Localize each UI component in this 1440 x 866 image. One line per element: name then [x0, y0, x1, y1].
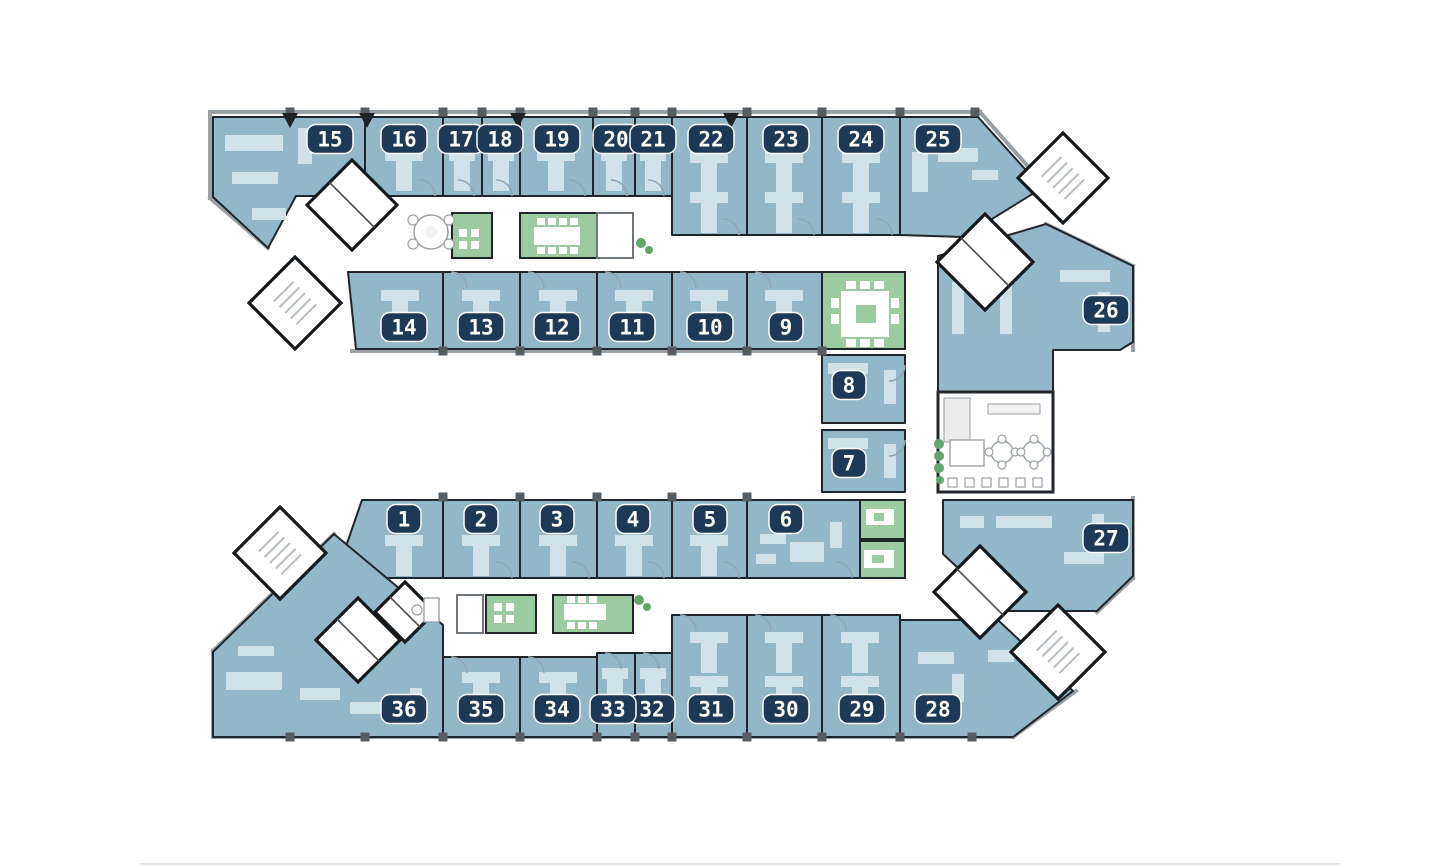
desk: [701, 163, 717, 193]
chair: [998, 461, 1006, 469]
furniture: [830, 522, 842, 548]
room-badge-23[interactable]: 23: [763, 125, 809, 154]
meeting-table: [891, 298, 899, 308]
furniture: [238, 646, 274, 656]
room-badge-15[interactable]: 15: [307, 125, 353, 154]
desk: [853, 203, 869, 233]
meeting-table: [459, 241, 467, 249]
mullion: [668, 347, 677, 356]
chair: [982, 478, 991, 487]
furniture: [252, 208, 286, 220]
desk: [690, 632, 728, 643]
plant-icon: [934, 439, 944, 449]
mullion: [516, 493, 525, 502]
room-number-label: 22: [698, 128, 723, 152]
chair: [998, 435, 1006, 443]
room-number-label: 12: [544, 316, 569, 340]
room-number-label: 36: [391, 698, 416, 722]
room-badge-19[interactable]: 19: [534, 125, 580, 154]
meeting-table: [860, 339, 870, 347]
meeting-table: [506, 603, 514, 611]
mullion: [971, 108, 980, 117]
meeting-table: [548, 247, 556, 254]
furniture: [226, 672, 282, 690]
room-number-label: 29: [849, 698, 874, 722]
meeting-table: [589, 622, 597, 629]
furniture: [960, 516, 984, 528]
floor-plan-stage: 1234567891011121314151617181920212223242…: [0, 0, 1440, 866]
mullion: [516, 347, 525, 356]
table-center: [425, 226, 437, 238]
room-number-label: 2: [475, 508, 488, 532]
mullion: [286, 733, 295, 742]
chair: [948, 478, 957, 487]
desk: [841, 676, 879, 687]
floor-plan: 1234567891011121314151617181920212223242…: [0, 0, 1440, 866]
desk: [765, 290, 803, 301]
room-badge-6[interactable]: 6: [769, 505, 803, 534]
room-number-label: 23: [773, 128, 798, 152]
mullion: [743, 347, 752, 356]
service-room: [457, 595, 483, 633]
mullion: [968, 733, 977, 742]
room-badge-27[interactable]: 27: [1083, 524, 1129, 553]
mullion: [743, 493, 752, 502]
room-badge-10[interactable]: 10: [687, 313, 733, 342]
service-room: [597, 213, 633, 258]
mullion: [743, 733, 752, 742]
chair: [1043, 448, 1051, 456]
mullion: [668, 493, 677, 502]
room-number-label: 16: [391, 128, 416, 152]
meeting-table: [874, 513, 884, 521]
meeting-table: [459, 229, 467, 237]
mullion: [668, 108, 677, 117]
meeting-table: [494, 615, 502, 623]
room-badge-26[interactable]: 26: [1083, 296, 1129, 325]
mullion: [439, 108, 448, 117]
meeting-table: [471, 229, 479, 237]
kitchen-island: [988, 404, 1040, 414]
room-badge-7[interactable]: 7: [832, 449, 866, 478]
room-number-label: 33: [600, 698, 625, 722]
plant-icon: [934, 451, 944, 461]
room-number-label: 21: [640, 128, 665, 152]
chair: [408, 215, 418, 225]
chair: [965, 478, 974, 487]
room-badge-8[interactable]: 8: [832, 371, 866, 400]
mullion: [589, 108, 598, 117]
room-badge-18[interactable]: 18: [477, 125, 523, 154]
plant-icon: [934, 463, 944, 473]
desk: [615, 535, 653, 546]
desk: [765, 676, 803, 687]
room-number-label: 6: [780, 508, 793, 532]
meeting-table: [856, 305, 876, 323]
room-number-label: 11: [619, 316, 644, 340]
room-number-label: 17: [448, 128, 473, 152]
furniture: [790, 542, 824, 562]
desk: [462, 672, 500, 683]
desk: [640, 668, 666, 679]
room-badge-5[interactable]: 5: [693, 505, 727, 534]
plant-icon: [936, 476, 944, 484]
mullion: [818, 347, 827, 356]
mullion: [593, 347, 602, 356]
desk: [701, 203, 717, 233]
room-badge-30[interactable]: 30: [763, 695, 809, 724]
meeting-table: [589, 596, 597, 603]
meeting-table: [578, 596, 586, 603]
room-badge-21[interactable]: 21: [630, 125, 676, 154]
room-badge-24[interactable]: 24: [838, 125, 884, 154]
meeting-table: [874, 339, 884, 347]
chair: [1030, 461, 1038, 469]
round-table: [1023, 441, 1045, 463]
desk: [396, 546, 412, 576]
room-number-label: 31: [698, 698, 723, 722]
desk: [690, 535, 728, 546]
room-number-label: 15: [317, 128, 342, 152]
room-number-label: 14: [391, 316, 416, 340]
room-number-label: 20: [603, 128, 628, 152]
desk: [473, 546, 489, 576]
meeting-table: [506, 615, 514, 623]
desk: [381, 290, 419, 301]
desk: [765, 192, 803, 203]
meeting-table: [537, 218, 545, 225]
meeting-table: [559, 218, 567, 225]
meeting-table: [578, 622, 586, 629]
mullion: [818, 108, 827, 117]
room-number-label: 32: [639, 698, 664, 722]
room-badge-28[interactable]: 28: [915, 695, 961, 724]
round-table: [991, 441, 1013, 463]
room-number-label: 24: [848, 128, 873, 152]
mullion: [896, 733, 905, 742]
meeting-table: [534, 227, 580, 245]
plant-icon: [634, 595, 644, 605]
desk: [539, 672, 577, 683]
room-number-label: 18: [487, 128, 512, 152]
meeting-table: [567, 622, 575, 629]
desk: [424, 598, 439, 622]
mullion: [743, 108, 752, 117]
furniture: [232, 172, 278, 184]
meeting-table: [564, 604, 606, 620]
desk: [606, 161, 622, 191]
desk: [626, 546, 642, 576]
desk: [454, 161, 470, 191]
meeting-table: [548, 218, 556, 225]
room-number-label: 8: [843, 374, 856, 398]
mullion: [593, 493, 602, 502]
meeting-table: [567, 596, 575, 603]
room-number-label: 9: [780, 316, 793, 340]
room-badge-9[interactable]: 9: [769, 313, 803, 342]
desk: [701, 546, 717, 576]
desk: [645, 161, 661, 191]
furniture: [952, 282, 964, 334]
desk: [776, 163, 792, 193]
break-table: [950, 440, 984, 466]
desk: [852, 643, 868, 673]
page-edge-line: [140, 863, 1340, 865]
desk: [690, 290, 728, 301]
room-badge-1[interactable]: 1: [387, 505, 421, 534]
room-badge-22[interactable]: 22: [688, 125, 734, 154]
chair: [1030, 435, 1038, 443]
room-badge-33[interactable]: 33: [590, 695, 636, 724]
desk: [602, 668, 628, 679]
plant-icon: [645, 246, 653, 254]
meeting-table: [872, 555, 884, 563]
room-number-label: 19: [544, 128, 569, 152]
desk: [462, 290, 500, 301]
mullion: [361, 733, 370, 742]
mullion: [818, 733, 827, 742]
furniture: [756, 554, 776, 564]
furniture: [760, 534, 786, 544]
mullion: [631, 733, 640, 742]
mullion: [439, 733, 448, 742]
meeting-table: [831, 314, 839, 324]
meeting-table: [874, 281, 884, 289]
desk: [841, 632, 879, 643]
room-badge-4[interactable]: 4: [616, 505, 650, 534]
desk: [550, 546, 566, 576]
desk: [462, 535, 500, 546]
furniture: [1060, 270, 1110, 282]
meeting-room-area[interactable]: [486, 595, 536, 633]
chair: [444, 215, 454, 225]
mullion: [668, 733, 677, 742]
room-number-label: 4: [627, 508, 640, 532]
room-number-label: 7: [843, 452, 856, 476]
desk: [690, 676, 728, 687]
meeting-room-4[interactable]: [486, 595, 536, 633]
chair: [1016, 478, 1025, 487]
meeting-table: [570, 218, 578, 225]
desk: [842, 192, 880, 203]
chair: [408, 239, 418, 249]
furniture: [300, 688, 340, 700]
mullion: [439, 347, 448, 356]
furniture: [918, 652, 954, 664]
desk: [765, 632, 803, 643]
furniture: [912, 152, 928, 192]
room-badge-2[interactable]: 2: [464, 505, 498, 534]
room-badge-16[interactable]: 16: [381, 125, 427, 154]
room-number-label: 30: [773, 698, 798, 722]
meeting-table: [860, 281, 870, 289]
room-number-label: 5: [704, 508, 717, 532]
desk: [853, 163, 869, 193]
room-number-label: 26: [1093, 299, 1118, 323]
room-badge-35[interactable]: 35: [458, 695, 504, 724]
room-badge-3[interactable]: 3: [540, 505, 574, 534]
furniture: [1064, 552, 1104, 564]
room-badge-31[interactable]: 31: [688, 695, 734, 724]
room-number-label: 25: [925, 128, 950, 152]
meeting-table: [891, 314, 899, 324]
desk: [701, 643, 717, 673]
mullion: [516, 733, 525, 742]
desk: [385, 535, 423, 546]
furniture: [972, 170, 998, 180]
desk: [776, 643, 792, 673]
mullion: [439, 493, 448, 502]
desk: [539, 290, 577, 301]
desk: [493, 161, 509, 191]
room-badge-36[interactable]: 36: [381, 695, 427, 724]
plant-icon: [636, 238, 646, 248]
mullion: [631, 108, 640, 117]
desk: [396, 161, 412, 191]
meeting-table: [471, 241, 479, 249]
desk: [776, 203, 792, 233]
desk: [539, 535, 577, 546]
chair: [1033, 478, 1042, 487]
room-badge-13[interactable]: 13: [458, 313, 504, 342]
chair: [1017, 448, 1025, 456]
meeting-table: [846, 281, 856, 289]
room-number-label: 28: [925, 698, 950, 722]
mullion: [896, 108, 905, 117]
room-number-label: 13: [468, 316, 493, 340]
page-bottom: [140, 863, 1340, 865]
kitchen-counter: [944, 398, 970, 442]
room-badge-11[interactable]: 11: [609, 313, 655, 342]
mullion: [478, 108, 487, 117]
meeting-table: [537, 247, 545, 254]
furniture: [828, 438, 868, 449]
furniture: [225, 135, 283, 151]
chair: [412, 605, 422, 615]
room-number-label: 34: [544, 698, 569, 722]
room-number-label: 1: [398, 508, 411, 532]
desk: [548, 161, 564, 191]
furniture: [884, 370, 896, 404]
room-badge-25[interactable]: 25: [915, 125, 961, 154]
furniture: [884, 444, 896, 478]
chair: [985, 448, 993, 456]
room-badge-29[interactable]: 29: [839, 695, 885, 724]
desk: [690, 192, 728, 203]
meeting-table: [831, 298, 839, 308]
chair: [444, 239, 454, 249]
room-number-label: 27: [1093, 527, 1118, 551]
room-badge-34[interactable]: 34: [534, 695, 580, 724]
meeting-table: [846, 339, 856, 347]
room-number-label: 3: [551, 508, 564, 532]
room-badge-14[interactable]: 14: [381, 313, 427, 342]
desk: [615, 290, 653, 301]
meeting-table: [494, 603, 502, 611]
meeting-table: [570, 247, 578, 254]
plant-icon: [643, 603, 651, 611]
room-number-label: 10: [697, 316, 722, 340]
chair: [999, 478, 1008, 487]
room-number-label: 35: [468, 698, 493, 722]
mullion: [593, 733, 602, 742]
furniture: [996, 516, 1052, 528]
meeting-table: [559, 247, 567, 254]
room-badge-12[interactable]: 12: [534, 313, 580, 342]
